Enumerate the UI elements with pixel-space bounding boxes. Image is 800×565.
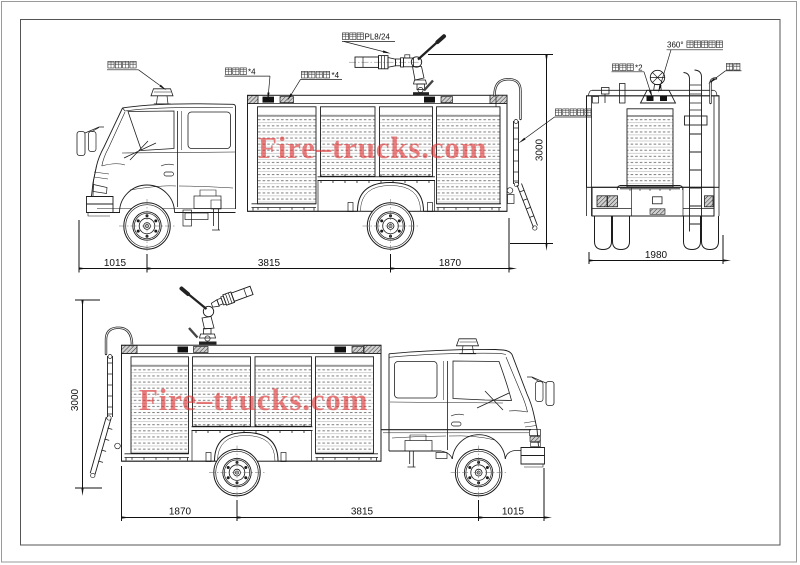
svg-text:*2: *2 <box>635 64 643 73</box>
svg-text:1015: 1015 <box>502 507 525 518</box>
svg-text:*4: *4 <box>248 68 256 77</box>
svg-text:1015: 1015 <box>104 258 127 269</box>
svg-text:1980: 1980 <box>645 250 668 261</box>
svg-text:3000: 3000 <box>535 138 546 161</box>
svg-text:3815: 3815 <box>351 507 374 518</box>
svg-text:360°: 360° <box>667 41 684 50</box>
svg-text:*4: *4 <box>332 71 340 80</box>
svg-text:3000: 3000 <box>70 388 81 411</box>
svg-text:3815: 3815 <box>258 258 281 269</box>
svg-text:1870: 1870 <box>439 258 462 269</box>
svg-text:1870: 1870 <box>169 507 192 518</box>
svg-text:PL8/24: PL8/24 <box>365 33 391 42</box>
